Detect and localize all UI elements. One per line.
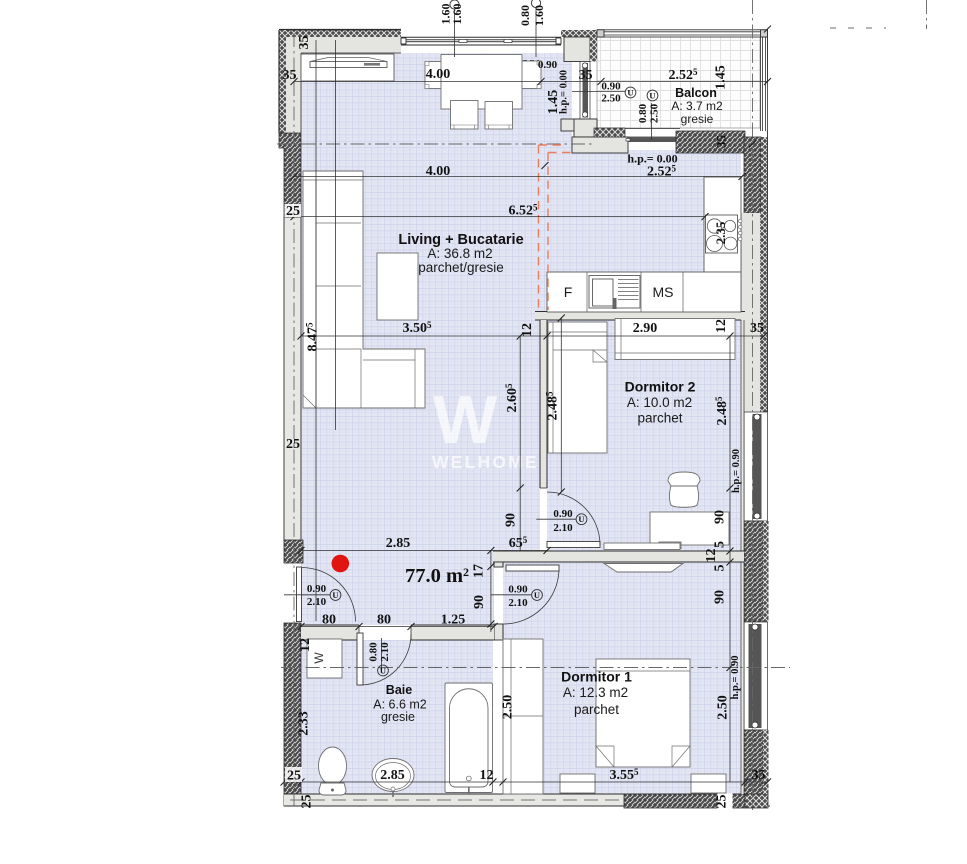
svg-text:Dormitor 1: Dormitor 1: [561, 669, 632, 685]
svg-text:A: 36.8 m2: A: 36.8 m2: [427, 246, 492, 261]
svg-text:2.90: 2.90: [633, 321, 658, 336]
svg-text:parchet: parchet: [637, 411, 682, 426]
svg-text:35: 35: [283, 68, 297, 83]
svg-text:W: W: [433, 382, 498, 458]
svg-text:12: 12: [520, 323, 535, 337]
svg-text:35: 35: [297, 36, 312, 50]
svg-text:25: 25: [286, 204, 300, 219]
svg-text:0.80: 0.80: [518, 5, 532, 26]
svg-text:80: 80: [322, 613, 336, 628]
svg-text:12: 12: [480, 768, 494, 783]
svg-text:parchet/gresie: parchet/gresie: [418, 260, 504, 275]
svg-text:2.10: 2.10: [508, 597, 528, 609]
svg-text:MS: MS: [653, 284, 674, 300]
svg-text:12: 12: [704, 549, 719, 563]
svg-text:90: 90: [713, 590, 728, 604]
svg-text:2.50: 2.50: [649, 103, 661, 123]
svg-text:2.10: 2.10: [553, 522, 573, 534]
svg-text:35: 35: [750, 321, 764, 336]
svg-text:U: U: [627, 88, 633, 98]
svg-text:35: 35: [714, 135, 729, 149]
svg-text:80: 80: [377, 613, 391, 628]
svg-text:25: 25: [715, 795, 730, 809]
svg-text:2.10: 2.10: [307, 596, 327, 608]
svg-text:gresie: gresie: [381, 710, 415, 724]
svg-text:0.80: 0.80: [637, 103, 649, 123]
svg-text:U: U: [534, 590, 540, 600]
svg-text:2.50: 2.50: [601, 93, 621, 105]
svg-text:0.90: 0.90: [538, 59, 558, 71]
svg-text:WELHOME: WELHOME: [432, 452, 539, 472]
svg-text:35: 35: [579, 68, 593, 83]
svg-text:F: F: [564, 284, 573, 300]
svg-text:2.35: 2.35: [713, 221, 728, 244]
svg-text:35: 35: [752, 768, 766, 783]
svg-text:h.p.= 0.90: h.p.= 0.90: [730, 656, 741, 700]
svg-text:U: U: [578, 514, 584, 524]
svg-text:2.50: 2.50: [501, 695, 516, 720]
svg-text:25: 25: [286, 437, 300, 452]
svg-text:parchet: parchet: [574, 702, 619, 717]
svg-text:U: U: [332, 590, 338, 600]
svg-text:12: 12: [298, 638, 313, 652]
svg-text:4.00: 4.00: [426, 67, 451, 82]
svg-text:90: 90: [713, 510, 728, 524]
svg-text:5: 5: [713, 541, 728, 548]
svg-text:25: 25: [300, 795, 315, 809]
svg-text:2.10: 2.10: [379, 642, 391, 662]
svg-text:0.90: 0.90: [601, 81, 621, 93]
svg-text:U: U: [380, 666, 386, 676]
svg-text:0.90: 0.90: [307, 583, 327, 595]
svg-text:5: 5: [713, 565, 728, 572]
svg-text:h.p.= 0.00: h.p.= 0.00: [559, 70, 570, 114]
svg-text:17: 17: [472, 564, 487, 578]
svg-text:77.0 m2: 77.0 m2: [405, 565, 469, 587]
svg-text:0.80: 0.80: [368, 642, 380, 662]
svg-text:2.85: 2.85: [386, 536, 411, 551]
svg-text:h.p.= 0.00: h.p.= 0.00: [627, 152, 677, 166]
svg-text:90: 90: [472, 595, 487, 609]
svg-text:Dormitor 2: Dormitor 2: [625, 379, 696, 395]
svg-text:12: 12: [714, 319, 729, 333]
svg-text:4.00: 4.00: [426, 164, 451, 179]
svg-text:h.p.= 0.90: h.p.= 0.90: [731, 449, 742, 493]
svg-text:2.85: 2.85: [380, 768, 405, 783]
svg-text:2.33: 2.33: [297, 711, 312, 736]
svg-text:25: 25: [287, 769, 301, 784]
svg-text:0.90: 0.90: [553, 508, 573, 520]
svg-text:90: 90: [504, 513, 519, 527]
svg-text:1.45: 1.45: [714, 65, 729, 90]
svg-text:A: 12.3 m2: A: 12.3 m2: [563, 685, 628, 700]
svg-text:gresie: gresie: [681, 112, 714, 126]
svg-text:Balcon: Balcon: [675, 86, 717, 100]
svg-text:U: U: [649, 91, 655, 101]
svg-text:A: 10.0 m2: A: 10.0 m2: [627, 395, 692, 410]
svg-text:1.25: 1.25: [441, 613, 466, 628]
svg-text:A: 3.7 m2: A: 3.7 m2: [671, 99, 723, 113]
svg-text:1.60: 1.60: [450, 4, 464, 25]
svg-text:Baie: Baie: [386, 683, 412, 697]
svg-text:2.50: 2.50: [716, 695, 731, 720]
svg-text:1.60: 1.60: [532, 5, 546, 26]
svg-text:0.90: 0.90: [508, 584, 528, 596]
svg-text:W: W: [312, 652, 326, 664]
